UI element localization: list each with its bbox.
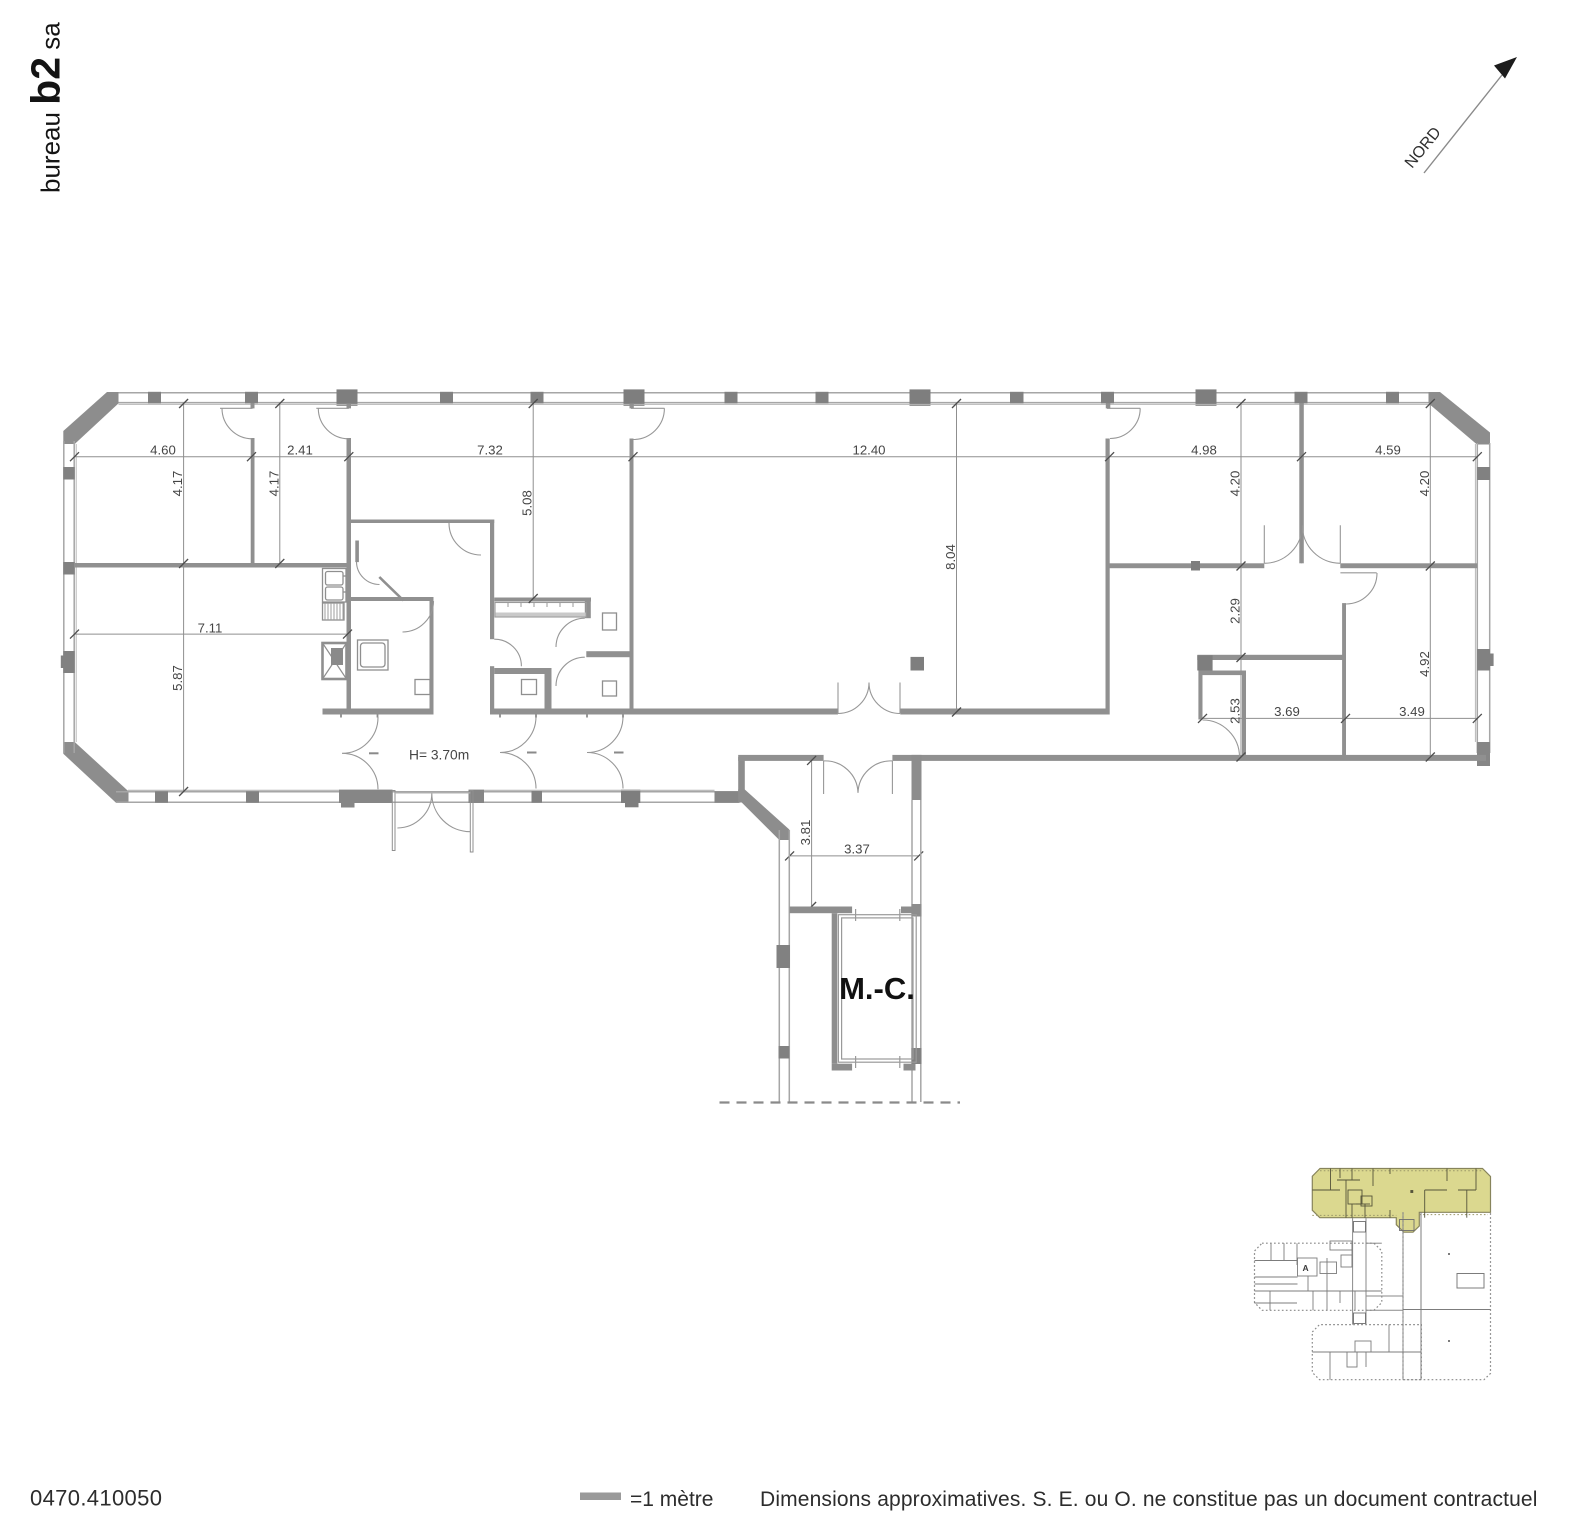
svg-text:M.-C.: M.-C. (839, 971, 915, 1006)
svg-text:2.29: 2.29 (1228, 598, 1243, 624)
svg-text:5.87: 5.87 (170, 665, 185, 691)
svg-text:4.20: 4.20 (1228, 471, 1243, 497)
svg-text:Dimensions approximatives. S.: Dimensions approximatives. S. E. ou O. n… (760, 1488, 1538, 1511)
svg-text:12.40: 12.40 (852, 443, 885, 458)
svg-text:4.60: 4.60 (150, 443, 176, 458)
svg-text:4.59: 4.59 (1375, 443, 1401, 458)
svg-text:=1 mètre: =1 mètre (630, 1488, 713, 1511)
svg-text:4.92: 4.92 (1417, 651, 1432, 677)
svg-text:3.81: 3.81 (798, 820, 813, 846)
svg-text:4.20: 4.20 (1417, 471, 1432, 497)
svg-text:3.37: 3.37 (844, 842, 870, 857)
svg-text:2.53: 2.53 (1228, 698, 1243, 724)
svg-text:0470.410050: 0470.410050 (30, 1486, 162, 1511)
svg-text:3.69: 3.69 (1274, 704, 1300, 719)
svg-text:5.08: 5.08 (520, 490, 535, 516)
svg-text:4.98: 4.98 (1191, 443, 1217, 458)
svg-text:3.49: 3.49 (1399, 704, 1425, 719)
svg-text:7.32: 7.32 (477, 443, 503, 458)
svg-text:8.04: 8.04 (943, 544, 958, 570)
svg-text:4.17: 4.17 (266, 471, 281, 497)
svg-text:A: A (1303, 1263, 1309, 1273)
svg-text:H= 3.70m: H= 3.70m (409, 748, 469, 763)
svg-text:4.17: 4.17 (170, 471, 185, 497)
svg-text:2.41: 2.41 (287, 443, 313, 458)
svg-text:7.11: 7.11 (198, 621, 223, 636)
